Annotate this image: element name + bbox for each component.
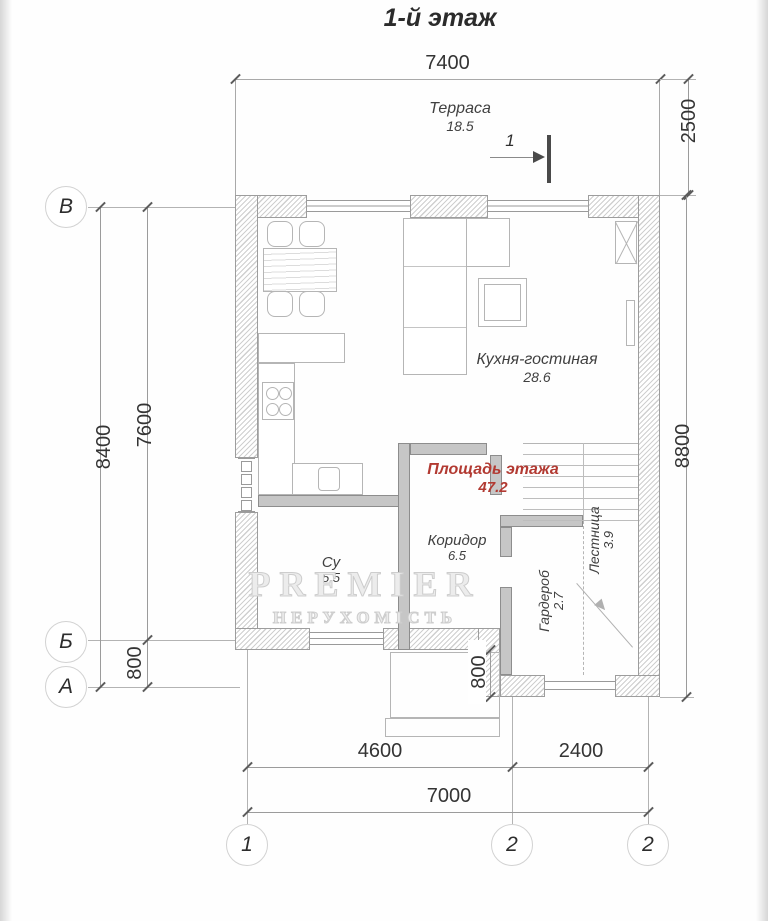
- dim-top-width: 7400: [380, 52, 515, 75]
- kitchen-counter-top: [258, 333, 345, 363]
- entry-door: [545, 681, 615, 690]
- wall-bottom-entry-left: [500, 675, 545, 697]
- dim-terrace-depth: 2500: [678, 89, 696, 153]
- stove: [262, 382, 294, 420]
- sink-bowl: [318, 467, 340, 491]
- coffee-table-inner: [484, 284, 521, 321]
- kitchen-name: Кухня-гостиная: [447, 351, 627, 369]
- wall-bottom-left: [235, 628, 310, 650]
- stair-direction-line: [576, 583, 633, 648]
- floor-area-label: Площадь этажа 47.2: [408, 461, 578, 497]
- window-pane: [241, 474, 252, 485]
- axis-row-a: А: [45, 666, 87, 708]
- corridor-name: Коридор: [397, 532, 517, 549]
- dim-bottom-right: 2400: [518, 740, 644, 763]
- axis-row-b: Б: [45, 621, 87, 663]
- row-ext-line: [88, 207, 235, 208]
- wall-top-pier: [410, 195, 488, 218]
- wardrobe-area: 2.7: [552, 546, 567, 656]
- row-ext-line: [88, 687, 240, 688]
- ext-line: [660, 79, 696, 80]
- col-ext-line: [648, 697, 649, 824]
- section-cut-bar: [547, 135, 551, 183]
- room-label-stairs: Лестница 3.9: [586, 490, 620, 590]
- stair-stringer: [583, 443, 584, 521]
- right-edge-shade: [756, 0, 768, 921]
- partition-living-corridor: [410, 443, 487, 455]
- window-pane: [241, 461, 252, 472]
- dim-line-bottom-1: [247, 767, 648, 768]
- stair-dashed-line: [583, 521, 584, 675]
- axis-col-1: 1: [226, 824, 268, 866]
- wardrobe-name: Гардероб: [536, 546, 552, 656]
- sofa-cushion-line: [404, 327, 466, 328]
- wall-left-upper: [235, 195, 258, 458]
- terrace-outline: [235, 79, 660, 195]
- floor-area-text: Площадь этажа: [408, 461, 578, 479]
- left-edge-shade: [0, 0, 12, 921]
- room-label-terrace: Терраса 18.5: [380, 100, 540, 134]
- section-label: 1: [495, 131, 525, 151]
- floor-area-value: 47.2: [408, 479, 578, 496]
- stairs-area: 3.9: [602, 490, 617, 590]
- dim-line-bottom-2: [247, 812, 648, 813]
- dim-bottom-total: 7000: [381, 785, 517, 808]
- axis-row-v: В: [45, 186, 87, 228]
- dining-chair: [299, 221, 325, 247]
- partition-kitchen-bath: [258, 495, 410, 507]
- column-marker: [615, 221, 637, 264]
- kitchen-area: 28.6: [447, 369, 627, 385]
- stove-burner: [279, 387, 292, 400]
- watermark-line1: PREMIER: [225, 563, 505, 605]
- window-top-2: [488, 200, 588, 212]
- stairs-name: Лестница: [586, 490, 602, 590]
- section-arrow-icon: [533, 151, 545, 163]
- dim-line-entry: [490, 650, 491, 697]
- dim-left-main: 7600: [134, 393, 152, 457]
- axis-col-2: 2: [491, 824, 533, 866]
- col-ext-line: [247, 650, 248, 824]
- room-label-corridor: Коридор 6.5: [397, 532, 517, 564]
- room-label-wardrobe: Гардероб 2.7: [536, 546, 570, 656]
- stove-burner: [279, 403, 292, 416]
- section-line: [490, 157, 535, 158]
- porch-step: [385, 718, 500, 737]
- window-bottom: [310, 632, 383, 645]
- dining-chair: [267, 221, 293, 247]
- row-ext-line: [88, 640, 235, 641]
- dim-bottom-left: 4600: [310, 740, 450, 763]
- dim-right-height: 8800: [672, 414, 690, 478]
- room-label-kitchen: Кухня-гостиная 28.6: [447, 351, 627, 385]
- dining-chair: [267, 291, 293, 317]
- sofa-cushion-line: [404, 266, 466, 267]
- wall-right: [638, 195, 660, 697]
- stove-burner: [266, 387, 279, 400]
- stair-direction-arrow-icon: [594, 599, 609, 614]
- watermark-line2: НЕРУХОМІСТЬ: [225, 608, 505, 628]
- floor-plan: 1-й этаж 7400 Терраса 18.5 1 2500: [0, 0, 768, 921]
- stove-burner: [266, 403, 279, 416]
- ext-line: [660, 195, 696, 196]
- dim-left-offset: 800: [124, 631, 142, 695]
- dim-left-total: 8400: [93, 415, 111, 479]
- wall-bottom-entry-right: [615, 675, 660, 697]
- dining-chair: [299, 291, 325, 317]
- dining-table: [263, 248, 337, 292]
- window-top-1: [307, 200, 410, 212]
- axis-col-2b: 2: [627, 824, 669, 866]
- corridor-area: 6.5: [397, 549, 517, 564]
- window-left: [238, 458, 255, 512]
- page-title: 1-й этаж: [310, 4, 570, 33]
- terrace-name: Терраса: [380, 100, 540, 118]
- ext-line: [660, 697, 694, 698]
- column-x-icon: [616, 221, 638, 263]
- dim-entry-offset: 800: [468, 640, 486, 704]
- window-pane: [241, 500, 252, 511]
- window-pane: [241, 487, 252, 498]
- radiator: [626, 300, 635, 346]
